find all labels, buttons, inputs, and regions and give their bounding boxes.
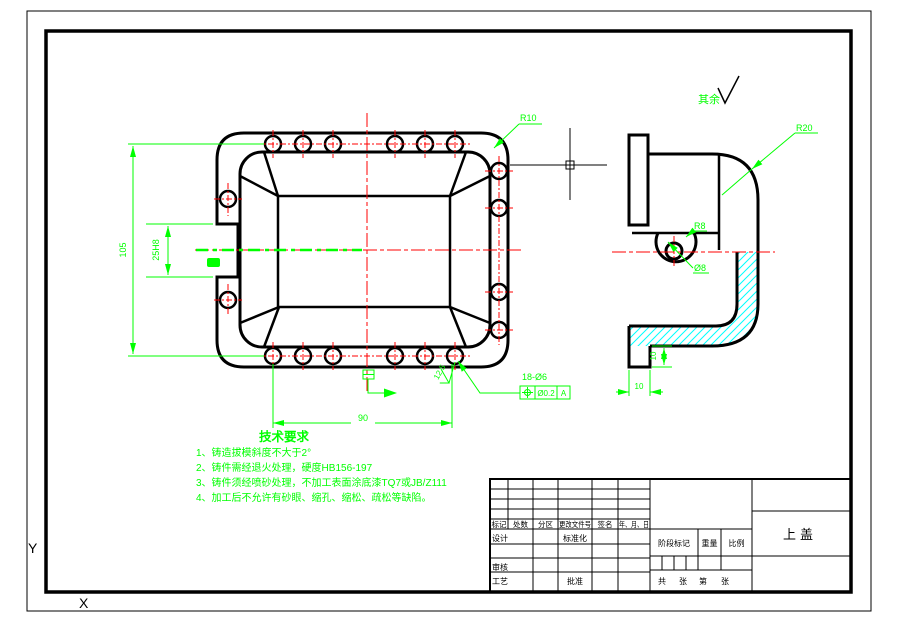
tb-stage-mark-label: 阶段标记 [658, 538, 690, 548]
dim-R8: R8 [686, 221, 707, 237]
tech-req-heading: 技术要求 [259, 429, 310, 444]
tech-req-item-3: 3、铸件须经喷砂处理，不加工表面涂底漆TQ7或JB/Z111 [196, 476, 447, 489]
ucs-icon: Y X [28, 540, 89, 611]
position-tolerance-icon [522, 387, 533, 398]
tb-header-zone: 分区 [538, 520, 553, 529]
drawing-canvas[interactable]: Y X [0, 0, 899, 630]
tb-sheet-total-label: 共 [658, 577, 666, 586]
part-name: 上盖 [783, 527, 817, 542]
tolerance-value: Ø0.2 [537, 389, 555, 398]
tb-scale-label: 比例 [729, 538, 745, 548]
tech-req-item-1: 1、铸造拔模斜度不大于2° [196, 446, 311, 459]
tb-check-label: 审核 [492, 562, 508, 572]
dim-10-vertical: 10 [649, 346, 672, 367]
tb-header-doc-no: 更改文件号 [559, 519, 591, 529]
section-view: R20 R8 Ø8 10 10 [612, 76, 818, 396]
flange-tab-top [629, 135, 648, 225]
surface-note: 其余 [698, 76, 739, 106]
tb-header-signature: 签名 [598, 519, 613, 529]
dim-R10-label: R10 [520, 113, 537, 123]
cad-drawing-page[interactable]: Y X [0, 0, 899, 630]
tolerance-datum: A [561, 389, 567, 398]
roughness-check-icon [718, 76, 739, 103]
tb-sheet-unit2-label: 张 [721, 577, 729, 586]
drawing-frame [46, 31, 851, 592]
dim-90-label: 90 [358, 413, 368, 423]
dim-25H8-label: 25H8 [151, 239, 161, 261]
plan-view: 105 25H8 90 R10 18-Ø6 [118, 113, 570, 428]
tb-sheet-unit1-label: 张 [679, 577, 687, 586]
crosshair-cursor [510, 128, 607, 200]
datum-mark [207, 258, 220, 267]
tb-weight-label: 重量 [702, 538, 718, 548]
roughness-value: 12.5 [432, 363, 448, 381]
surface-note-label: 其余 [698, 92, 720, 106]
tb-approve-label: 批准 [567, 576, 583, 586]
plan-cavity-bottom [278, 196, 450, 307]
inner-wall-line [716, 252, 737, 326]
ucs-x-label: X [79, 595, 89, 611]
tech-requirements: 技术要求 1、铸造拔模斜度不大于2° 2、铸件需经退火处理，硬度HB156-19… [196, 429, 447, 504]
tb-standardization-label: 标准化 [563, 533, 587, 543]
tb-process-label: 工艺 [492, 577, 508, 586]
tb-sheet-no-label: 第 [699, 576, 707, 586]
dim-10-horizontal: 10 [616, 370, 663, 396]
holes-note-label: 18-Ø6 [522, 372, 547, 382]
tb-header-date: 年、月、日 [619, 519, 649, 529]
title-block: 标记 处数 分区 更改文件号 签名 年、月、日 设计 标准化 审核 工艺 批准 … [490, 479, 851, 592]
dim-10v-label: 10 [649, 351, 658, 360]
dim-R10: R10 [494, 113, 542, 148]
section-marker [363, 370, 397, 398]
tech-req-item-4: 4、加工后不允许有砂眼、缩孔、缩松、疏松等缺陷。 [196, 491, 432, 504]
tb-header-count: 处数 [513, 519, 528, 529]
dim-R20-label: R20 [796, 123, 813, 133]
section-arrow-icon [384, 389, 397, 398]
dim-dia8-label: Ø8 [694, 263, 706, 273]
dim-10h-label: 10 [635, 382, 644, 391]
tech-req-item-2: 2、铸件需经退火处理，硬度HB156-197 [196, 461, 373, 474]
dim-105-label: 105 [118, 242, 128, 257]
ucs-y-label: Y [28, 540, 38, 556]
tb-header-mark: 标记 [492, 519, 507, 529]
dim-R8-label: R8 [694, 221, 706, 231]
tb-design-label: 设计 [492, 533, 508, 543]
